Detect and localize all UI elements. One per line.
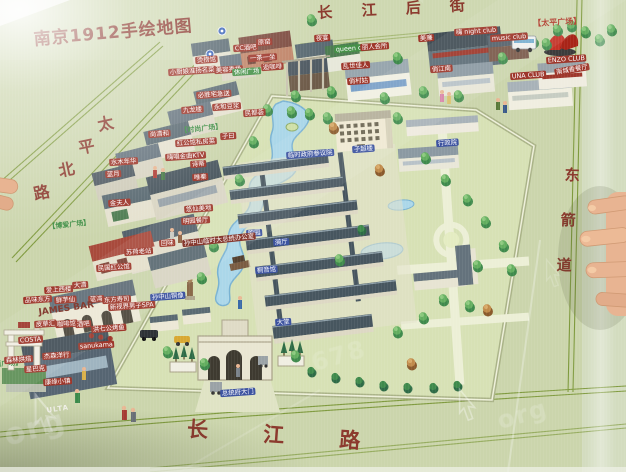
photo-of-map: 南京1912手绘地图 长 江 后 街太平北路长 江 路东箭道【太平广场】【博爱广… <box>0 0 626 472</box>
map-illustration <box>0 0 626 472</box>
zichaolou-building <box>335 110 394 152</box>
